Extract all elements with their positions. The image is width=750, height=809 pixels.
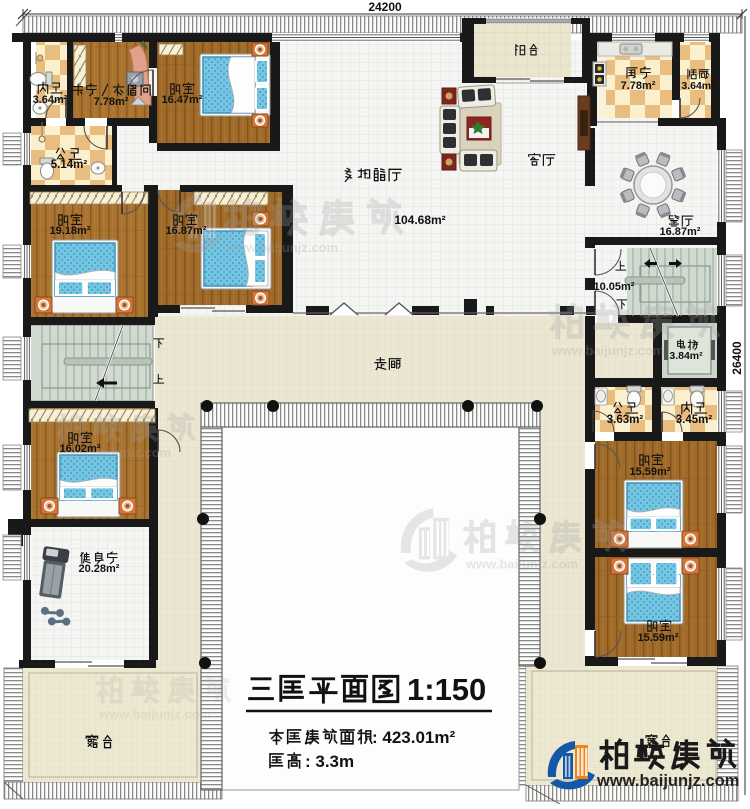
svg-text:: 3.3m: : 3.3m xyxy=(305,752,354,771)
svg-text:7.78m²: 7.78m² xyxy=(621,80,656,92)
svg-text:www.baijunjz.com: www.baijunjz.com xyxy=(465,557,578,572)
svg-text:www.baijunjz.com: www.baijunjz.com xyxy=(596,772,739,790)
svg-text:3.64m²: 3.64m² xyxy=(33,94,68,106)
svg-text:: 423.01m²: : 423.01m² xyxy=(372,728,455,747)
svg-text:5.14m²: 5.14m² xyxy=(51,159,88,171)
svg-text:3.63m²: 3.63m² xyxy=(607,414,644,426)
svg-text:16.87m²: 16.87m² xyxy=(660,226,701,238)
svg-text:3.84m²: 3.84m² xyxy=(669,350,703,362)
svg-text:www.baijunjz.com: www.baijunjz.com xyxy=(225,240,338,255)
svg-text:10.05m²: 10.05m² xyxy=(594,281,635,293)
svg-text:24200: 24200 xyxy=(368,0,402,14)
svg-text:3.45m²: 3.45m² xyxy=(676,414,713,426)
svg-text:104.68m²: 104.68m² xyxy=(394,213,445,227)
svg-text:16.02m²: 16.02m² xyxy=(60,443,101,455)
svg-text:16.47m²: 16.47m² xyxy=(162,94,203,106)
svg-text:3.64m²: 3.64m² xyxy=(681,80,715,92)
svg-text:16.87m²: 16.87m² xyxy=(166,225,207,237)
svg-text:20.28m²: 20.28m² xyxy=(79,563,120,575)
svg-text:1:150: 1:150 xyxy=(407,672,486,707)
svg-text:15.59m²: 15.59m² xyxy=(630,466,671,478)
svg-text:www.baijunjz.com: www.baijunjz.com xyxy=(98,707,211,722)
svg-text:26400: 26400 xyxy=(730,341,744,375)
svg-text:19.18m²: 19.18m² xyxy=(50,225,91,237)
svg-text:15.59m²: 15.59m² xyxy=(638,632,679,644)
svg-text:7.78m²: 7.78m² xyxy=(94,96,129,108)
svg-text:www.baijunjz.com: www.baijunjz.com xyxy=(551,343,664,358)
